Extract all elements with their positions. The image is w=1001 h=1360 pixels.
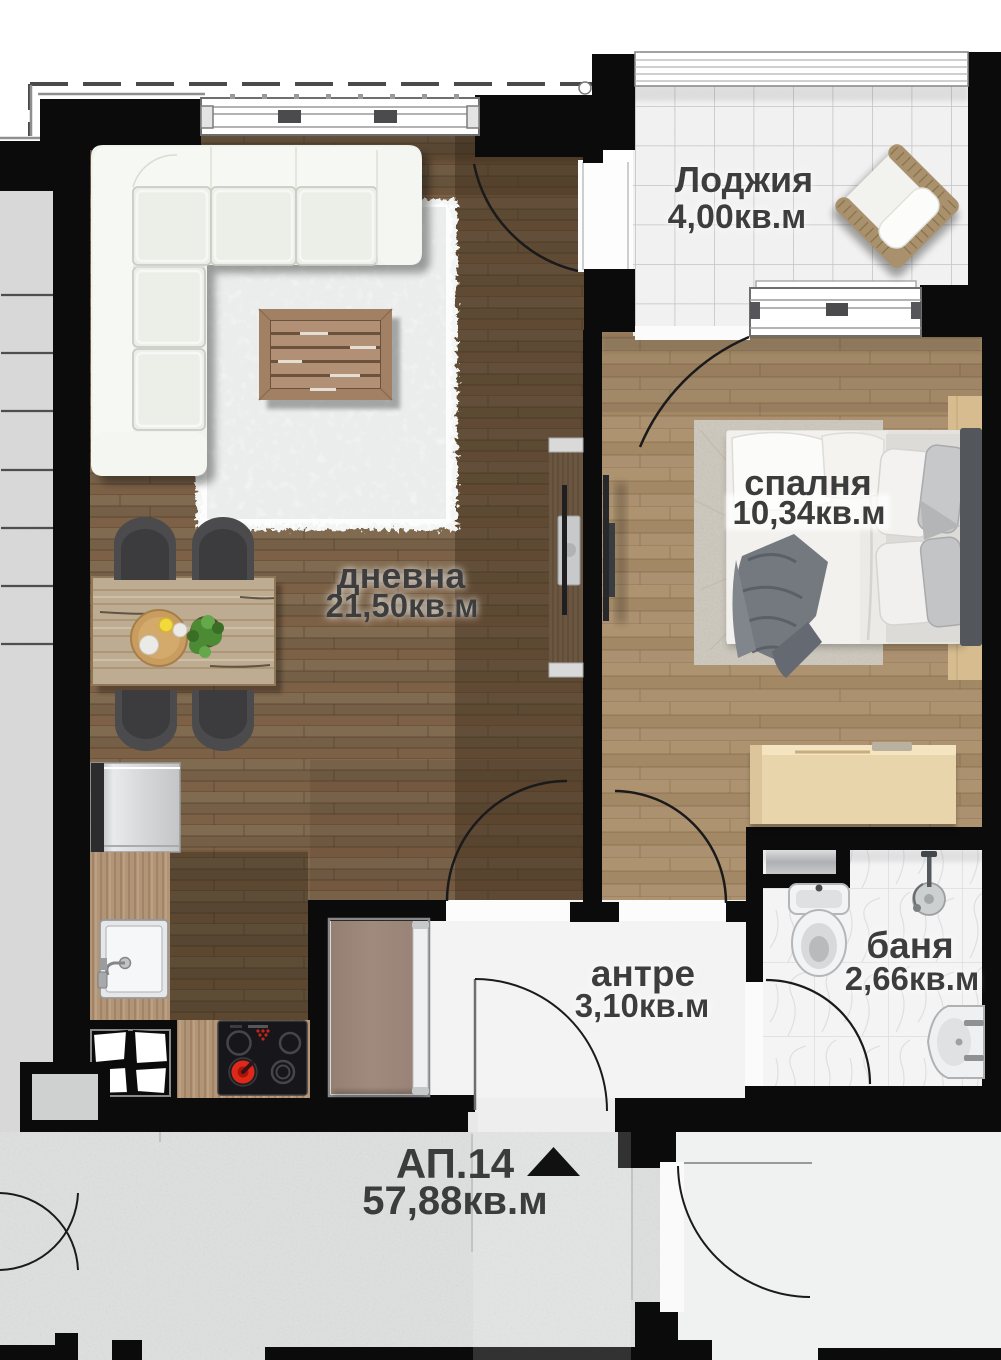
svg-text:21,50кв.м: 21,50кв.м (326, 587, 479, 624)
svg-text:2,66кв.м: 2,66кв.м (845, 960, 980, 997)
svg-text:10,34кв.м: 10,34кв.м (733, 494, 886, 531)
svg-text:4,00кв.м: 4,00кв.м (668, 198, 807, 236)
svg-text:3,10кв.м: 3,10кв.м (575, 987, 710, 1024)
svg-text:57,88кв.м: 57,88кв.м (362, 1179, 547, 1223)
svg-text:Лоджия: Лоджия (675, 159, 813, 200)
